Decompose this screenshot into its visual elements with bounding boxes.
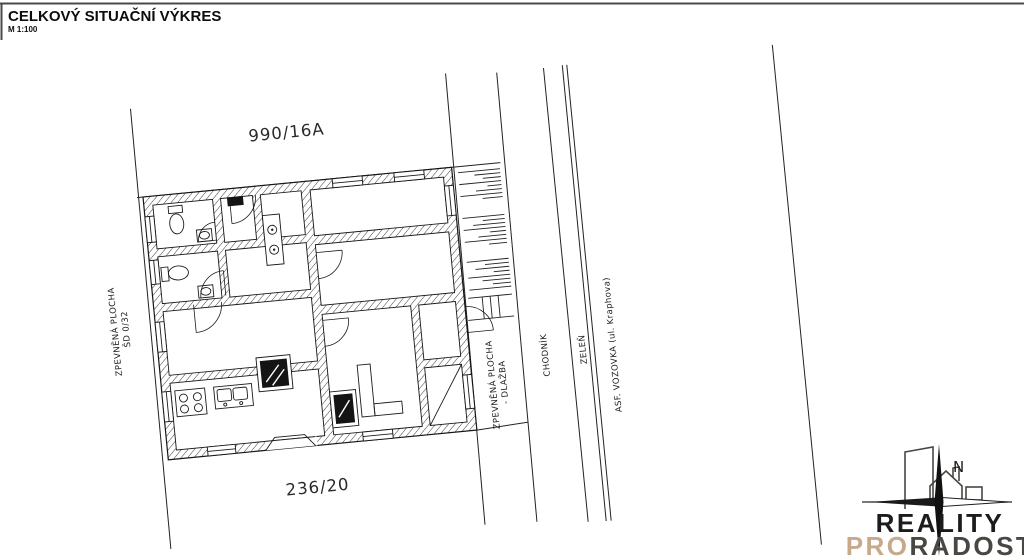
drawing-scale: M 1:100 — [8, 25, 38, 34]
north-label: N — [953, 458, 964, 476]
logo-brand-accent: PRO — [846, 531, 910, 557]
drawing-title: CELKOVÝ SITUAČNÍ VÝKRES — [8, 7, 221, 25]
logo-brand-rest: RADOST — [910, 531, 1024, 557]
site-plan-svg: CELKOVÝ SITUAČNÍ VÝKRES M 1:100 — [0, 0, 1024, 557]
room-living — [163, 297, 317, 375]
logo-brand-line2: PRORADOST — [846, 531, 1024, 557]
page: CELKOVÝ SITUAČNÍ VÝKRES M 1:100 — [0, 0, 1024, 557]
room-wc2 — [158, 251, 222, 304]
room-closet-a — [419, 302, 461, 360]
building-plan — [143, 165, 503, 460]
